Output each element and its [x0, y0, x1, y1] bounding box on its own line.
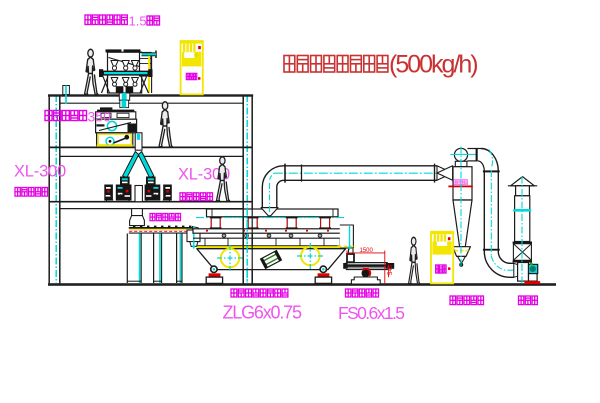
svg-text:FS0.6x1.5: FS0.6x1.5 — [338, 303, 404, 323]
svg-text:350: 350 — [88, 109, 112, 125]
svg-text:1.5: 1.5 — [129, 14, 147, 29]
svg-text:ZLG6x0.75: ZLG6x0.75 — [223, 303, 302, 323]
svg-text:(500kg/h): (500kg/h) — [389, 51, 477, 79]
svg-text:XL-300: XL-300 — [14, 163, 66, 181]
svg-text:1500: 1500 — [360, 248, 374, 254]
svg-text:545: 545 — [388, 264, 394, 275]
